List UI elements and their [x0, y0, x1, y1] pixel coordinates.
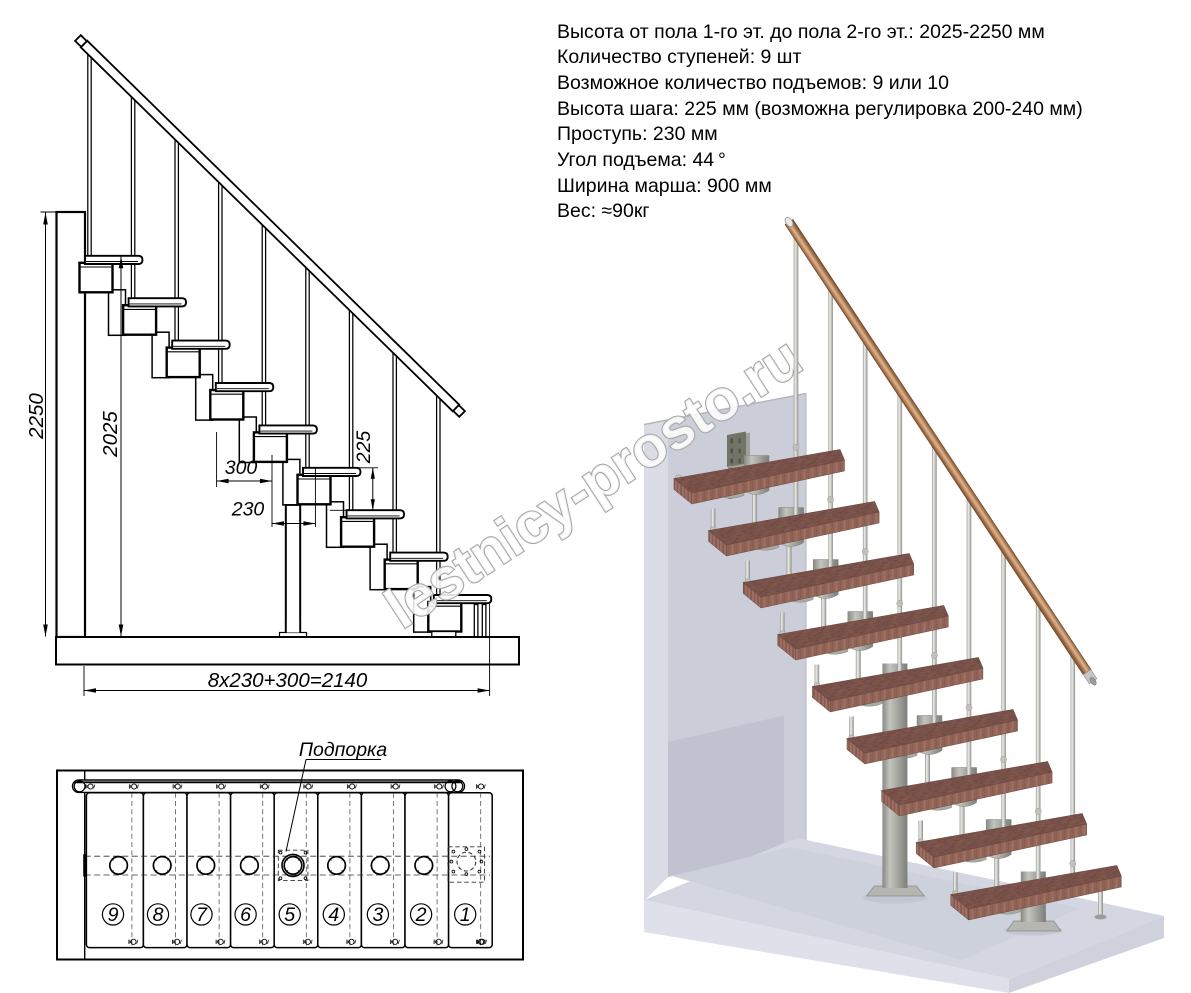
- svg-text:7: 7: [196, 904, 208, 926]
- svg-text:225: 225: [353, 431, 375, 465]
- svg-text:8: 8: [153, 904, 164, 926]
- svg-text:4: 4: [328, 904, 339, 926]
- svg-text:9: 9: [108, 904, 119, 926]
- svg-text:8x230+300=2140: 8x230+300=2140: [208, 669, 368, 692]
- svg-text:300: 300: [225, 457, 258, 479]
- svg-text:1: 1: [460, 904, 471, 926]
- svg-text:230: 230: [231, 499, 265, 521]
- svg-text:5: 5: [284, 904, 295, 926]
- svg-text:Подпорка: Подпорка: [299, 739, 387, 761]
- svg-text:2250: 2250: [25, 393, 48, 440]
- svg-text:6: 6: [240, 904, 251, 926]
- svg-text:3: 3: [372, 904, 383, 926]
- svg-text:2: 2: [415, 904, 427, 926]
- svg-text:2025: 2025: [99, 411, 122, 458]
